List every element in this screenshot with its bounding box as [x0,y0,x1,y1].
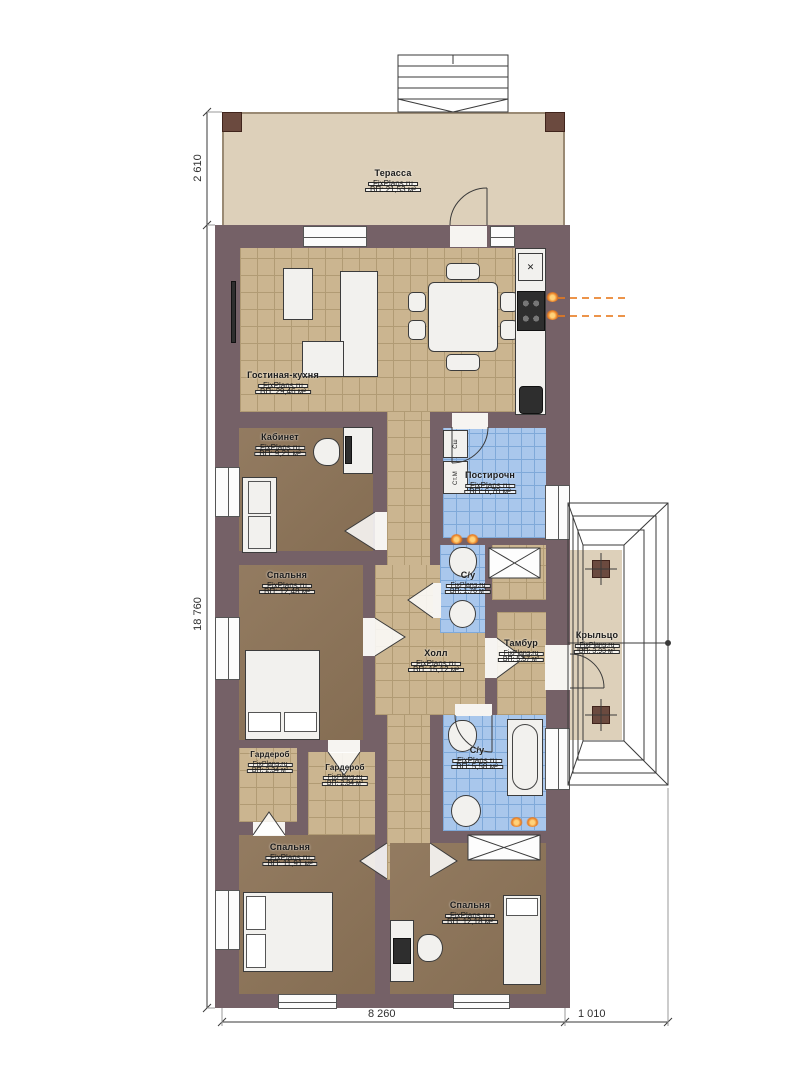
floor-plan-page: ✕ Сш Ст.М [0,0,792,1080]
room-name: Гардероб [247,750,293,759]
door-opening-wc [433,583,441,618]
door-opening-bathroom [455,704,492,716]
room-area: ВП: 5,57 м² [498,658,544,662]
door-opening-bedroom-1 [363,618,375,656]
room-label-wc-small: С/у FixPlans.ru ВП: 1,76 м² [445,570,491,594]
vent-icon: ✕ [527,262,535,273]
room-name: Спальня [259,570,315,580]
room-area: ВП: 9,21 м² [254,452,306,456]
room-name: Постирочн [464,470,516,480]
room-area: ВП: 2,84 м² [322,782,368,786]
coffee-table [283,268,313,320]
sofa [340,271,378,377]
door-opening-entrance [545,645,571,690]
window [490,226,515,247]
door-opening-vestibule [485,638,497,678]
room-label-vestibule: Тамбур FixPlans.ru ВП: 5,57 м² [498,638,544,662]
room-area: ВП: 15,12 м² [408,668,464,672]
room-name: Тамбур [498,638,544,648]
dryer-label: Сш [452,439,458,449]
kitchen-sink [519,386,543,414]
door-opening-laundry [452,413,488,429]
window [215,467,240,517]
dining-table [428,282,498,352]
room-label-office: Кабинет FixPlans.ru ВП: 9,21 м² [254,432,306,456]
flame-icon [526,817,539,827]
terrace-post [545,112,565,132]
window [545,485,570,540]
flame-icon [450,534,463,544]
porch-post [592,560,610,578]
room-floor-vestibule [497,612,546,715]
dimension-house-width: 8 260 [368,1008,396,1020]
chair [408,320,426,340]
room-area: ВП: 21,53 м² [365,188,421,192]
room-name: Холл [408,648,464,658]
window [215,890,240,950]
dimension-terrace-height: 2 610 [192,148,204,188]
room-label-bedroom-2: Спальня FixPlans.ru ВП: 12,18 м² [442,900,498,924]
room-area: ВП: 1,76 м² [445,590,491,594]
pillow [506,898,538,916]
office-chair [313,438,340,466]
pillow [246,934,266,968]
pillow [248,712,281,732]
room-name: Крыльцо [574,630,620,640]
bathtub-inner [512,724,538,790]
pillow [246,896,266,930]
porch-post [592,706,610,724]
sofa-cushion [248,481,271,514]
dryer: Сш [443,430,468,458]
room-label-terrace: Терасса FixPlans.ru ВП: 21,53 м² [365,168,421,192]
room-label-living-kitchen: Гостиная-кухня FixPlans.ru ВП: 29,46 м² [247,370,319,394]
room-label-hall: Холл FixPlans.ru ВП: 15,12 м² [408,648,464,672]
sink [451,795,481,827]
room-area: ВП: 29,46 м² [255,390,311,394]
room-area: ВП: 12,18 м² [442,920,498,924]
room-label-wardrobe-1: Гардероб FixPlans.ru ВП: 2,34 м² [247,750,293,773]
kitchen-vent: ✕ [518,253,543,281]
flame-icon [546,310,559,320]
room-name: Спальня [442,900,498,910]
sink [449,600,476,628]
door-opening-wardrobe-2 [328,740,360,753]
washer-label: Ст.М [452,471,458,485]
room-label-laundry: Постирочн FixPlans.ru ВП: 6,70 м² [464,470,516,494]
computer [393,938,411,964]
window [278,994,337,1009]
room-area: ВП: 5,58 м² [451,765,503,769]
niche-floor [492,545,546,600]
room-label-bedroom-1: Спальня FixPlans.ru ВП: 12,48 м² [259,570,315,594]
pillow [284,712,317,732]
room-area: ВП: 3,93 м² [574,650,620,654]
room-name: Гардероб [322,763,368,772]
dimension-porch-width: 1 010 [578,1008,606,1020]
room-label-wardrobe-2: Гардероб FixPlans.ru ВП: 2,84 м² [322,763,368,786]
room-label-porch: Крыльцо FixPlans.ru ВП: 3,93 м² [574,630,620,654]
room-name: С/у [451,745,503,755]
room-name: Спальня [262,842,317,852]
room-name: Кабинет [254,432,306,442]
room-label-bathroom: С/у FixPlans.ru ВП: 5,58 м² [451,745,503,769]
room-name: Терасса [365,168,421,178]
room-label-bedroom-3: Спальня FixPlans.ru ВП: 11,91 м² [262,842,317,866]
room-area: ВП: 12,48 м² [259,590,315,594]
chair [446,354,480,371]
door-opening-office [375,512,387,550]
chair [408,292,426,312]
tv [231,281,236,343]
room-area: ВП: 11,91 м² [262,862,317,866]
window [215,617,240,680]
window [453,994,510,1009]
door-opening-wardrobe-1 [253,822,285,836]
room-area: ВП: 6,70 м² [464,490,516,494]
terrace-post [222,112,242,132]
chair [446,263,480,280]
flame-icon [546,292,559,302]
flame-icon [510,817,523,827]
sofa-cushion [248,516,271,549]
door-opening-terrace [450,226,487,247]
stove [517,291,545,331]
room-name: С/у [445,570,491,580]
window [545,728,570,790]
room-area: ВП: 2,34 м² [247,769,293,773]
office-chair [417,934,443,962]
window [303,226,367,247]
room-name: Гостиная-кухня [247,370,319,380]
dimension-house-height: 18 760 [192,588,204,640]
flame-icon [466,534,479,544]
monitor [345,436,352,464]
